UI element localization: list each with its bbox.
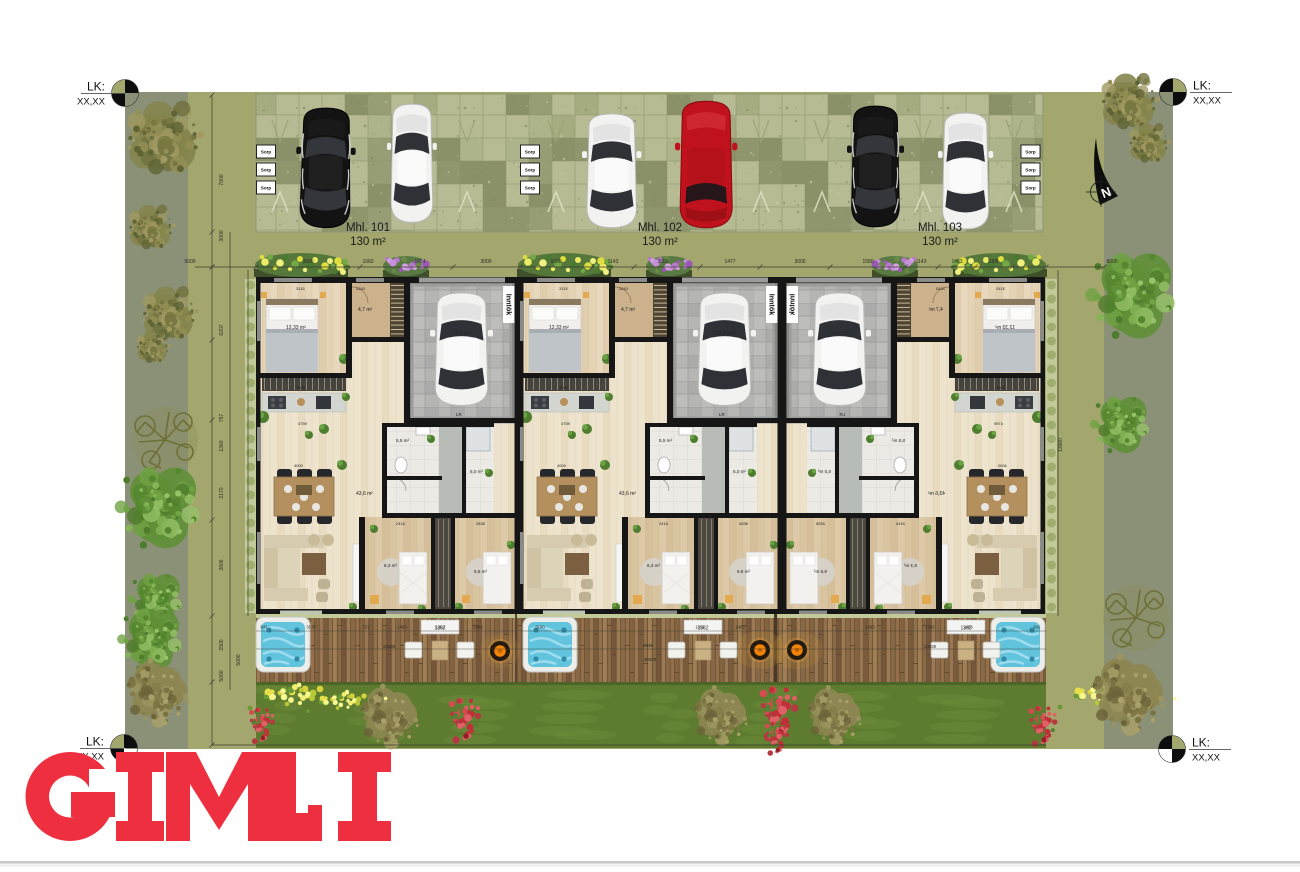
svg-text:641: 641 xyxy=(261,625,269,630)
svg-text:LK:: LK: xyxy=(1193,79,1211,93)
svg-text:1580: 1580 xyxy=(862,259,873,265)
svg-text:Mhl. 103: Mhl. 103 xyxy=(918,222,962,234)
svg-text:XX,XX: XX,XX xyxy=(1193,96,1222,107)
svg-text:1463: 1463 xyxy=(473,625,483,630)
svg-text:1143: 1143 xyxy=(608,259,619,265)
svg-text:1463: 1463 xyxy=(865,625,875,630)
svg-text:5000: 5000 xyxy=(219,670,225,681)
svg-text:1477: 1477 xyxy=(724,259,735,265)
svg-text:LK:: LK: xyxy=(87,80,105,94)
svg-text:1360: 1360 xyxy=(219,440,225,451)
svg-text:1463: 1463 xyxy=(951,259,962,265)
svg-text:5000: 5000 xyxy=(236,654,242,665)
svg-text:5000: 5000 xyxy=(184,259,195,265)
svg-text:1463: 1463 xyxy=(735,625,745,630)
svg-text:130 m²: 130 m² xyxy=(642,236,678,248)
svg-text:641: 641 xyxy=(1034,625,1042,630)
svg-text:1463: 1463 xyxy=(397,625,407,630)
svg-text:3000: 3000 xyxy=(302,259,313,265)
svg-text:1005: 1005 xyxy=(987,259,998,265)
svg-text:LK:: LK: xyxy=(1192,736,1210,750)
svg-text:1660: 1660 xyxy=(362,259,373,265)
svg-text:3000: 3000 xyxy=(794,259,805,265)
svg-text:3000: 3000 xyxy=(657,259,668,265)
svg-text:9938: 9938 xyxy=(643,643,654,648)
svg-text:3000: 3000 xyxy=(219,230,225,241)
svg-text:3170: 3170 xyxy=(306,625,316,630)
svg-text:6207: 6207 xyxy=(219,324,225,335)
svg-text:LK:: LK: xyxy=(86,735,104,749)
svg-text:Mhl. 102: Mhl. 102 xyxy=(638,222,682,234)
svg-text:757: 757 xyxy=(363,625,371,630)
svg-text:XX,XX: XX,XX xyxy=(77,97,106,108)
svg-text:1352: 1352 xyxy=(925,625,935,630)
svg-text:1684: 1684 xyxy=(414,259,425,265)
svg-text:1463: 1463 xyxy=(963,625,973,630)
svg-text:130 m²: 130 m² xyxy=(922,236,958,248)
svg-text:13000: 13000 xyxy=(1058,438,1064,452)
svg-text:8000: 8000 xyxy=(1106,259,1117,265)
svg-text:2170: 2170 xyxy=(219,487,225,498)
svg-text:1143: 1143 xyxy=(916,259,927,265)
svg-text:2500: 2500 xyxy=(219,639,225,650)
svg-text:1352: 1352 xyxy=(435,625,445,630)
svg-text:3000: 3000 xyxy=(480,259,491,265)
svg-text:Mhl. 101: Mhl. 101 xyxy=(346,222,390,234)
svg-text:3606: 3606 xyxy=(219,559,225,570)
svg-text:1580: 1580 xyxy=(550,259,561,265)
svg-text:757: 757 xyxy=(219,414,225,423)
svg-text:3190: 3190 xyxy=(535,625,545,630)
svg-text:130 m²: 130 m² xyxy=(350,236,386,248)
svg-text:1362: 1362 xyxy=(695,625,705,630)
svg-text:XX,XX: XX,XX xyxy=(1192,753,1221,764)
svg-text:30000: 30000 xyxy=(644,657,657,662)
svg-text:7000: 7000 xyxy=(219,174,225,185)
svg-text:10030: 10030 xyxy=(924,644,937,649)
svg-text:10030: 10030 xyxy=(383,644,396,649)
